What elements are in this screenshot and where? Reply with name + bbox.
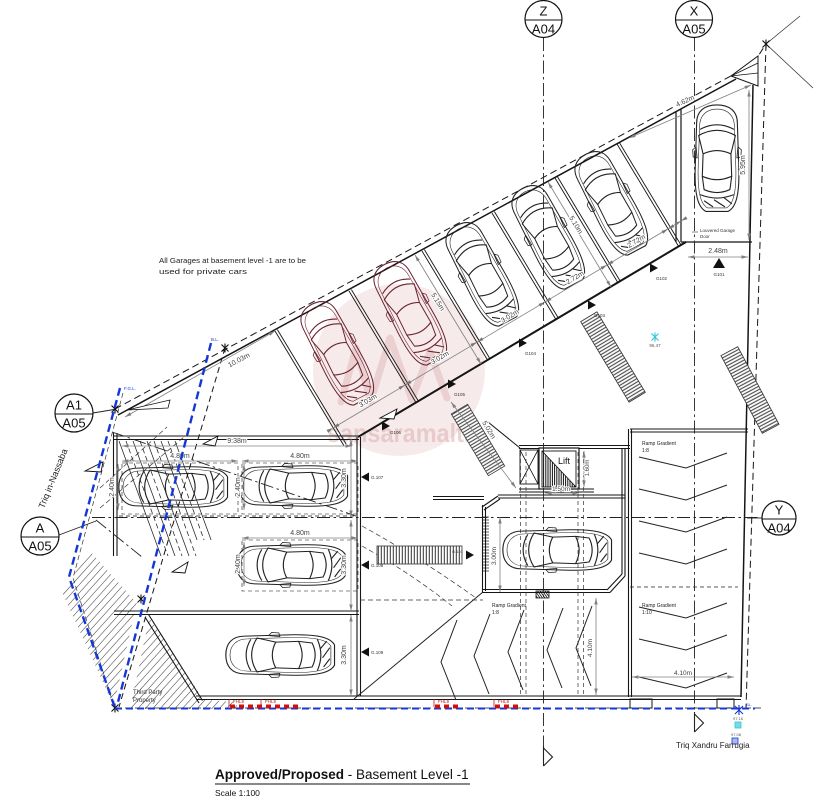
svg-text:A04: A04 xyxy=(767,521,790,536)
svg-text:1:8: 1:8 xyxy=(492,610,499,616)
svg-text:Z: Z xyxy=(540,4,548,19)
svg-text:97.08: 97.08 xyxy=(731,732,742,737)
svg-text:A1: A1 xyxy=(66,398,82,413)
svg-text:4.10m: 4.10m xyxy=(587,639,594,657)
svg-text:3.30m: 3.30m xyxy=(341,555,348,575)
svg-text:Third Party: Third Party xyxy=(133,690,162,696)
svg-text:1:8: 1:8 xyxy=(642,448,649,454)
svg-text:Y: Y xyxy=(775,503,784,518)
svg-text:3.30m: 3.30m xyxy=(341,645,348,665)
svg-text:1:10: 1:10 xyxy=(642,610,652,616)
svg-text:A: A xyxy=(36,521,45,536)
svg-text:SL.: SL. xyxy=(746,702,752,707)
svg-text:Approved/Proposed - Basement L: Approved/Proposed - Basement Level -1 xyxy=(215,767,469,782)
svg-text:4.80m: 4.80m xyxy=(290,530,310,537)
svg-text:G104: G104 xyxy=(525,351,537,356)
svg-text:2.48m: 2.48m xyxy=(708,248,728,255)
svg-text:G102: G102 xyxy=(656,276,668,281)
svg-text:Ramp Gradient: Ramp Gradient xyxy=(492,603,527,609)
svg-text:Lift: Lift xyxy=(558,456,571,466)
svg-text:sansaramalta: sansaramalta xyxy=(327,418,477,448)
svg-text:Scale 1:100: Scale 1:100 xyxy=(215,788,260,798)
svg-text:9.38m: 9.38m xyxy=(227,438,247,445)
svg-text:G.108: G.108 xyxy=(371,563,384,568)
svg-text:B.L.: B.L. xyxy=(211,337,219,342)
svg-text:Property: Property xyxy=(133,698,156,704)
svg-text:A05: A05 xyxy=(62,416,85,431)
svg-text:FHL9: FHL9 xyxy=(265,699,277,704)
svg-text:2.40m: 2.40m xyxy=(235,554,242,574)
svg-text:used for private cars: used for private cars xyxy=(159,267,247,276)
svg-text:All Garages at basement level: All Garages at basement level -1 are to … xyxy=(159,256,306,265)
svg-text:Ramp Gradient: Ramp Gradient xyxy=(642,441,677,447)
svg-text:G.110: G.110 xyxy=(452,549,463,554)
svg-text:97.16: 97.16 xyxy=(733,716,744,721)
svg-text:FHL9: FHL9 xyxy=(233,699,245,704)
svg-text:Ramp Gradient: Ramp Gradient xyxy=(642,603,677,609)
svg-text:3.00m: 3.00m xyxy=(491,547,498,565)
svg-text:G106: G106 xyxy=(390,430,402,435)
svg-text:10.03m: 10.03m xyxy=(227,352,251,369)
svg-text:1.50m: 1.50m xyxy=(552,486,570,493)
svg-text:G105: G105 xyxy=(454,392,466,397)
svg-text:1.60m: 1.60m xyxy=(585,460,591,477)
svg-text:G103: G103 xyxy=(594,313,606,318)
svg-text:G.109: G.109 xyxy=(371,650,384,655)
svg-text:3.30m: 3.30m xyxy=(341,468,348,488)
svg-text:FHL9: FHL9 xyxy=(498,699,510,704)
svg-text:FHL9: FHL9 xyxy=(438,699,450,704)
svg-text:X: X xyxy=(690,4,699,19)
svg-text:A04: A04 xyxy=(532,22,555,37)
svg-text:G.107: G.107 xyxy=(371,475,384,480)
svg-text:F.G.L.: F.G.L. xyxy=(124,386,136,391)
svg-text:95.47: 95.47 xyxy=(649,343,661,348)
svg-text:A05: A05 xyxy=(28,539,51,554)
svg-text:Triq in-Nassaba: Triq in-Nassaba xyxy=(37,447,70,509)
svg-text:Triq Xandru Farrugia: Triq Xandru Farrugia xyxy=(676,741,750,750)
svg-text:Louvered Garage: Louvered Garage xyxy=(700,228,736,233)
svg-text:G101: G101 xyxy=(713,272,725,277)
svg-text:4.10m: 4.10m xyxy=(674,670,692,677)
svg-text:5.95m: 5.95m xyxy=(740,155,747,175)
svg-text:5.10m: 5.10m xyxy=(567,215,583,235)
svg-text:2.40m: 2.40m xyxy=(235,477,242,497)
svg-text:2.40m: 2.40m xyxy=(109,477,116,497)
svg-text:Door: Door xyxy=(700,234,710,239)
svg-text:A05: A05 xyxy=(682,22,705,37)
svg-text:4.80m: 4.80m xyxy=(290,453,310,460)
